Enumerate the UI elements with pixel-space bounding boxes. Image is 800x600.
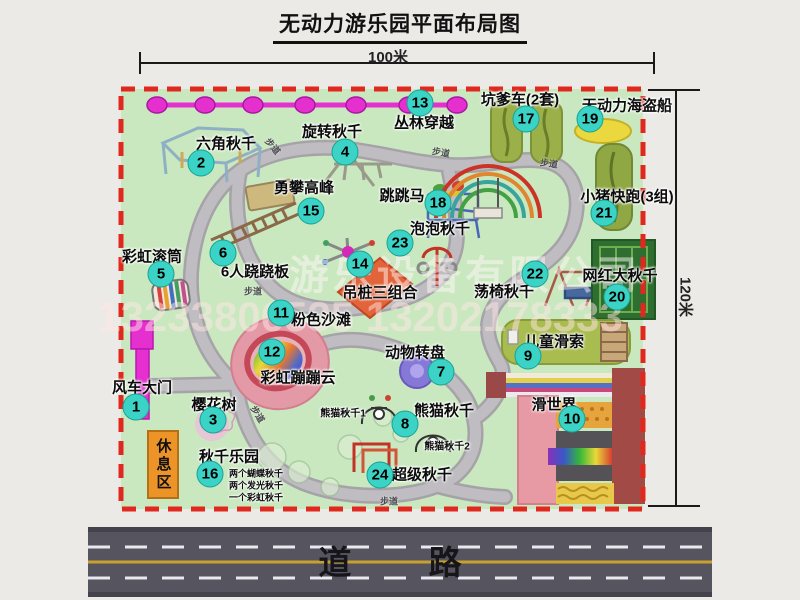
rainbow-roller-icon: [151, 279, 191, 312]
piggy-run-track-icon: [596, 144, 632, 230]
road: [88, 527, 712, 597]
screenshot-stage: 无动力游乐园平面布局图 100米 120米 游乐设备有限公司 132338065…: [0, 0, 800, 600]
pirate-ship-icon: [575, 119, 631, 143]
park-map-canvas: [0, 0, 800, 600]
kids-zipline-icon: [502, 320, 630, 364]
animal-turntable-icon: [400, 354, 434, 388]
net-swing-icon: [592, 240, 655, 319]
